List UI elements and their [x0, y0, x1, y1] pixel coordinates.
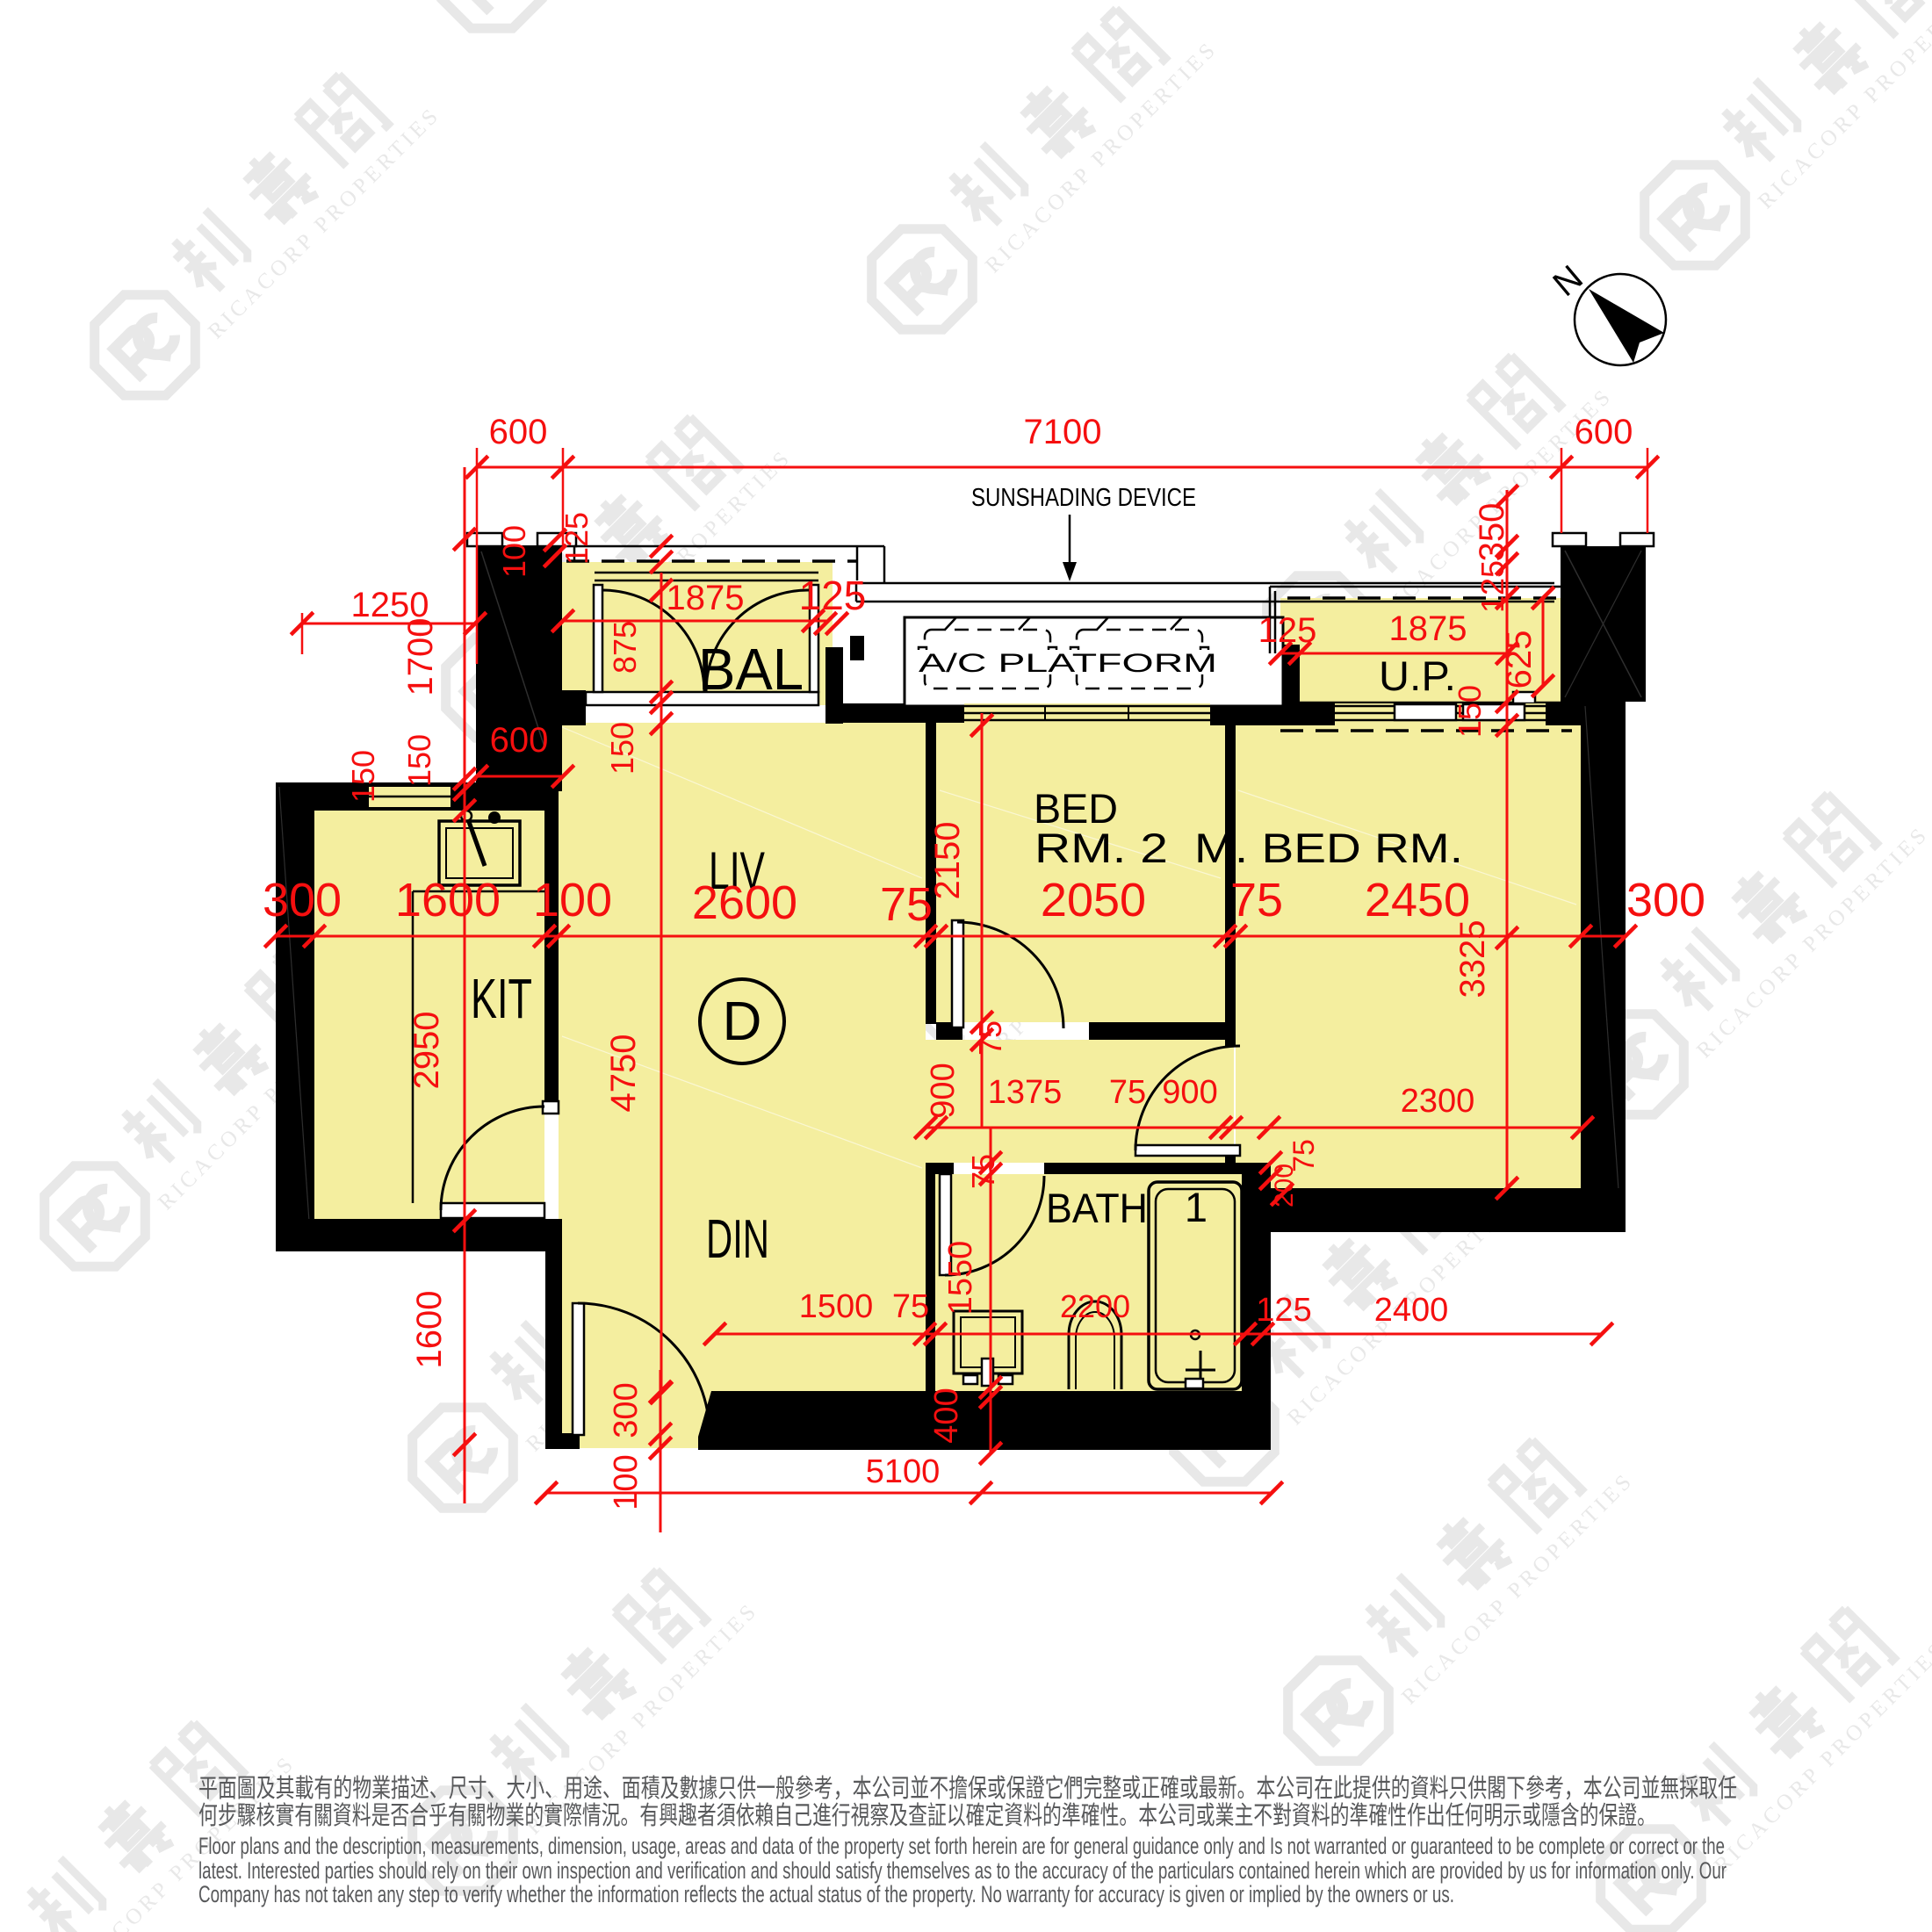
- svg-text:350: 350: [1473, 503, 1511, 562]
- svg-text:D: D: [723, 991, 762, 1052]
- svg-text:75: 75: [1109, 1074, 1146, 1111]
- svg-text:300: 300: [608, 1382, 645, 1438]
- svg-text:2300: 2300: [1401, 1083, 1475, 1120]
- svg-text:3325: 3325: [1453, 920, 1492, 998]
- svg-text:M. BED RM.: M. BED RM.: [1194, 825, 1463, 871]
- svg-text:何步驟核實有關資料是否合乎有關物業的實際情況。有興趣者須依賴: 何步驟核實有關資料是否合乎有關物業的實際情況。有興趣者須依賴自己進行視察及查証以…: [198, 1801, 1656, 1830]
- svg-text:2950: 2950: [407, 1012, 446, 1090]
- svg-text:2150: 2150: [928, 822, 967, 900]
- svg-text:2200: 2200: [1060, 1288, 1130, 1324]
- svg-text:125: 125: [1258, 611, 1317, 650]
- svg-text:KIT: KIT: [471, 967, 532, 1030]
- svg-text:125: 125: [1474, 560, 1510, 613]
- svg-text:1550: 1550: [942, 1241, 979, 1316]
- svg-text:BATH: BATH: [1046, 1185, 1148, 1231]
- svg-text:1375: 1375: [988, 1074, 1063, 1111]
- svg-text:125: 125: [799, 573, 867, 618]
- svg-text:1875: 1875: [667, 579, 745, 617]
- svg-text:300: 300: [1626, 874, 1705, 926]
- svg-text:100: 100: [496, 525, 532, 578]
- svg-text:125: 125: [559, 512, 595, 565]
- svg-text:latest. Interested parties sho: latest. Interested parties should rely o…: [198, 1857, 1727, 1884]
- svg-text:1875: 1875: [1389, 609, 1467, 648]
- svg-text:DIN: DIN: [706, 1209, 769, 1270]
- svg-text:625: 625: [1500, 631, 1539, 689]
- svg-text:150: 150: [345, 750, 381, 803]
- svg-text:300: 300: [263, 874, 342, 926]
- svg-text:600: 600: [489, 413, 548, 451]
- svg-text:2600: 2600: [692, 876, 797, 929]
- svg-text:75: 75: [880, 878, 933, 931]
- svg-text:RM. 2: RM. 2: [1034, 825, 1168, 871]
- svg-text:平面圖及其載有的物業描述、尺寸、大小、用途、面積及數據只供一: 平面圖及其載有的物業描述、尺寸、大小、用途、面積及數據只供一般參考，本公司並不擔…: [198, 1774, 1737, 1803]
- svg-text:A/C PLATFORM: A/C PLATFORM: [919, 649, 1217, 678]
- svg-text:Floor plans and the descriptio: Floor plans and the description, measure…: [198, 1833, 1725, 1859]
- svg-text:2450: 2450: [1365, 874, 1470, 926]
- svg-text:1600: 1600: [395, 874, 501, 926]
- svg-text:400: 400: [928, 1388, 965, 1443]
- svg-text:600: 600: [490, 721, 549, 760]
- svg-text:1600: 1600: [410, 1291, 449, 1369]
- svg-text:150: 150: [1452, 685, 1488, 738]
- svg-text:100: 100: [533, 874, 612, 926]
- svg-text:900: 900: [925, 1063, 962, 1118]
- svg-text:75: 75: [892, 1288, 929, 1325]
- svg-text:875: 875: [607, 621, 643, 674]
- svg-text:5100: 5100: [866, 1453, 941, 1490]
- svg-text:BAL: BAL: [698, 637, 804, 703]
- svg-text:4750: 4750: [604, 1034, 643, 1113]
- svg-text:1: 1: [1185, 1184, 1207, 1230]
- svg-text:U.P.: U.P.: [1379, 652, 1456, 699]
- svg-text:125: 125: [1256, 1292, 1311, 1329]
- svg-text:1700: 1700: [401, 618, 440, 696]
- svg-text:Company has not taken any step: Company has not taken any step to verify…: [198, 1881, 1454, 1907]
- svg-text:100: 100: [608, 1454, 645, 1510]
- svg-text:600: 600: [1575, 413, 1633, 451]
- svg-text:2050: 2050: [1041, 874, 1146, 926]
- svg-text:7100: 7100: [1024, 413, 1102, 451]
- svg-text:900: 900: [1162, 1074, 1217, 1111]
- svg-text:75: 75: [1230, 874, 1283, 926]
- svg-text:150: 150: [604, 722, 640, 775]
- svg-text:N: N: [1546, 258, 1590, 304]
- svg-text:SUNSHADING DEVICE: SUNSHADING DEVICE: [971, 484, 1196, 512]
- svg-text:1500: 1500: [799, 1288, 874, 1325]
- svg-text:2400: 2400: [1374, 1292, 1449, 1329]
- svg-text:150: 150: [401, 734, 437, 787]
